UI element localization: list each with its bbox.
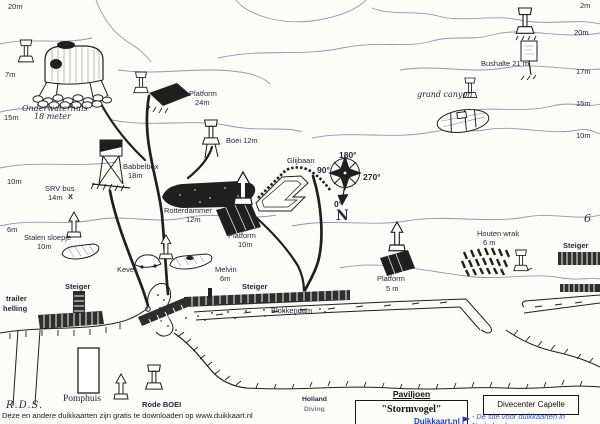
label-srv-bus-x: X	[68, 193, 73, 201]
label-glijbaan: Glijbaan	[287, 157, 315, 165]
depth-10m-right: 10m	[576, 132, 591, 140]
credit-line: Deze en andere duikkaarten zijn gratis t…	[2, 411, 253, 420]
label-platform-5m: Platform	[377, 275, 405, 283]
label-platform-10m: Platform	[228, 232, 256, 240]
depth-15m-right: 15m	[576, 100, 591, 108]
paviljoen-title: Paviljoen	[355, 389, 468, 399]
compass-180: 180°	[339, 151, 357, 160]
label-kever: Kever	[117, 266, 137, 274]
label-trailer-helling-1: trailer	[6, 295, 27, 303]
signature-rds: R.D.S.	[6, 400, 43, 411]
label-rode-boei: Rode BOEI	[142, 401, 181, 409]
label-platform-24m: Platform	[189, 90, 217, 98]
label-grand-canyon: grand canyon	[417, 90, 472, 99]
depth-6m-left: 6m	[7, 226, 17, 234]
depth-2m-right: 2m	[580, 2, 590, 10]
divecenter-name: Divecenter Capelle	[497, 400, 565, 409]
label-pomphuis: Pomphuis	[63, 394, 101, 404]
map-labels: 20m7m15m10m6m2m20m17m15m10m6Onderwaterhu…	[0, 0, 600, 424]
label-melvin: Melvin	[215, 266, 237, 274]
brand-line: Duikkaart.nl - Dé site voor duikkaarten …	[414, 412, 600, 424]
label-houten-wrak-depth: 6 m	[483, 239, 496, 247]
brand-tagline: - Dé site voor duikkaarten in Nederland	[472, 412, 600, 424]
label-steiger-long: Steiger	[242, 283, 267, 291]
label-steiger-vertical: Steiger	[65, 283, 90, 291]
compass-90: 90°	[317, 166, 330, 175]
dive-map-scan: 20m7m15m10m6m2m20m17m15m10m6Onderwaterhu…	[0, 0, 600, 424]
label-babbelbox: Babbelbox	[123, 163, 158, 171]
label-bushalte-21m: Bushalte 21 m	[481, 60, 529, 68]
compass-n: N	[336, 208, 349, 224]
label-platform-24m-depth: 24m	[195, 99, 210, 107]
depth-6-right: 6	[584, 212, 591, 225]
label-boei-12m: Boei 12m	[226, 137, 258, 145]
depth-15m-left: 15m	[4, 114, 19, 122]
label-houten-wrak: Houten wrak	[477, 230, 519, 238]
depth-17m-right: 17m	[576, 68, 591, 76]
label-platform-10m-depth: 10m	[238, 241, 253, 249]
label-srv-bus-depth: 14m	[48, 194, 63, 202]
label-trailer-helling-2: helling	[3, 305, 27, 313]
dive-flag-icon	[462, 416, 470, 424]
label-holland-2: Diving	[304, 406, 325, 412]
label-rotterdammer-depth: 12m	[186, 216, 201, 224]
label-blokkendam: Blokkendam	[271, 307, 312, 315]
label-melvin-depth: 6m	[220, 275, 230, 283]
compass-270: 270°	[363, 173, 381, 182]
label-platform-5m-depth: 5 m	[386, 285, 399, 293]
label-stalen-sloepje-depth: 10m	[37, 243, 52, 251]
depth-20m-left: 20m	[8, 3, 23, 11]
depth-20m-right: 20m	[574, 29, 589, 37]
label-babbelbox-depth: 18m	[128, 172, 143, 180]
label-rotterdammer: Rotterdammer	[164, 207, 212, 215]
brand-name: Duikkaart.nl	[414, 417, 460, 424]
depth-10m-left: 10m	[7, 178, 22, 186]
label-holland-1: Holland	[302, 396, 327, 403]
label-stalen-sloepje: Stalen sloepje	[24, 234, 71, 242]
label-onderwaterhuis-depth: 18 meter	[34, 112, 71, 121]
depth-7m-left: 7m	[5, 71, 15, 79]
label-steiger-right: Steiger	[563, 242, 588, 250]
